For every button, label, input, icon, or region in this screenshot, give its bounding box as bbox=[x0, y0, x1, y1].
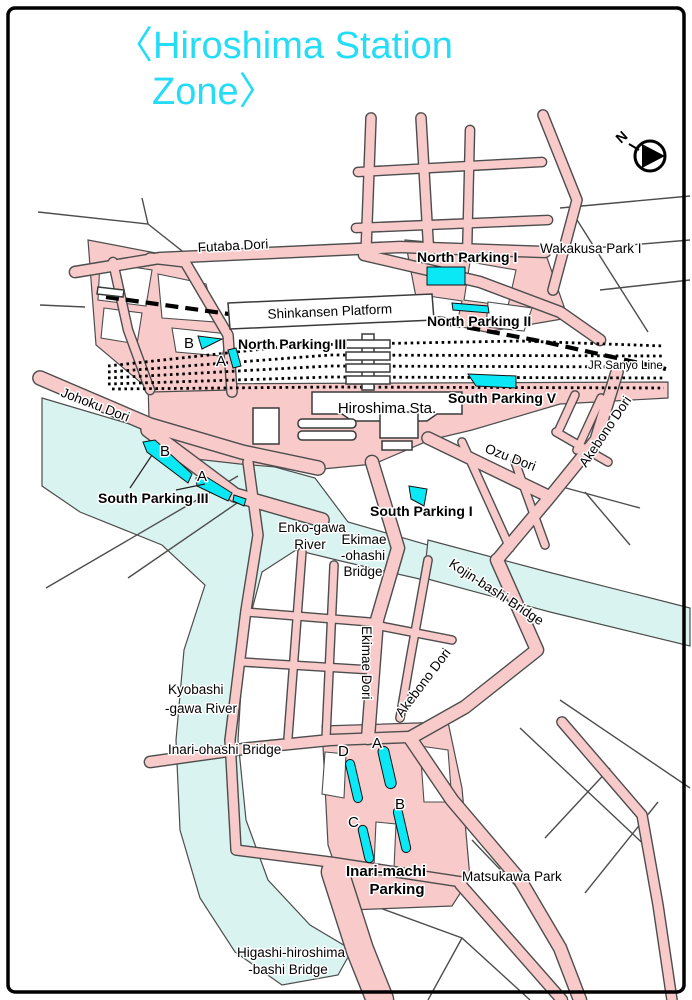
label-higashi-bridge-line1: Higashi-hiroshima bbox=[237, 945, 346, 960]
label-higashi-bridge-line2: -bashi Bridge bbox=[248, 962, 328, 977]
label-north-parking-3: North Parking III bbox=[238, 336, 346, 352]
label-ekimae-ohashi-line3: Bridge bbox=[343, 564, 382, 579]
minor-road bbox=[572, 212, 648, 332]
minor-road bbox=[585, 492, 630, 545]
platform-bar bbox=[346, 340, 390, 348]
label-jr-sanyo-line: JR Sanyo Line bbox=[588, 360, 663, 372]
road-lower-grid-v2 bbox=[326, 565, 334, 738]
label-north-parking-3-a: A bbox=[216, 353, 226, 370]
label-enko-gawa-river-line2: River bbox=[294, 537, 326, 552]
compass-n-label: N bbox=[612, 128, 630, 147]
label-enko-gawa-river-line1: Enko-gawa bbox=[278, 520, 346, 535]
label-kyobashi-gawa-line1: Kyobashi bbox=[168, 682, 224, 697]
label-lot-a: A bbox=[372, 735, 382, 752]
minor-road bbox=[380, 908, 530, 1000]
label-kyobashi-gawa-line2: -gawa River bbox=[165, 701, 238, 716]
label-matsukawa-park: Matsukawa Park bbox=[462, 869, 562, 884]
north-arrow-icon: N bbox=[612, 128, 665, 171]
platform-bar bbox=[346, 352, 390, 360]
label-south-parking-3: South Parking III bbox=[98, 490, 208, 506]
label-inari-machi-line1: Inari-machi bbox=[346, 863, 426, 880]
label-south-parking-5: South Parking V bbox=[448, 390, 557, 406]
label-lot-b: B bbox=[395, 796, 405, 813]
bus-bay bbox=[298, 431, 356, 440]
road-grid-north-v3 bbox=[467, 130, 470, 257]
label-ekimae-ohashi-line1: Ekimae bbox=[341, 532, 386, 547]
minor-road bbox=[555, 485, 640, 508]
label-north-parking-2: North Parking II bbox=[427, 313, 531, 329]
hiroshima-station-zone-map-page: 〈Hiroshima Station Zone〉 Futaba Dori Wak… bbox=[0, 0, 692, 1000]
label-south-parking-3-b: B bbox=[160, 443, 170, 460]
platform-bar bbox=[346, 376, 390, 384]
forecourt-structure bbox=[382, 441, 412, 450]
label-ekimae-dori: Ekimae Dori bbox=[359, 626, 374, 700]
bus-bay bbox=[298, 419, 356, 428]
label-north-parking-3-b: B bbox=[184, 335, 194, 352]
minor-road bbox=[142, 198, 148, 224]
label-south-parking-1: South Parking I bbox=[370, 503, 473, 519]
label-south-parking-3-a: A bbox=[197, 468, 207, 485]
minor-road bbox=[600, 280, 690, 290]
map-canvas: 〈Hiroshima Station Zone〉 Futaba Dori Wak… bbox=[0, 0, 692, 1000]
north-parking-1-marker bbox=[427, 267, 465, 285]
road-grid-north-v1 bbox=[366, 118, 371, 252]
label-ekimae-ohashi-line2: -ohashi bbox=[341, 548, 385, 563]
label-lot-d: D bbox=[338, 743, 349, 760]
road-lower-grid-h2 bbox=[242, 662, 372, 670]
label-inari-machi-line2: Parking bbox=[369, 881, 424, 898]
label-hiroshima-station: Hiroshima Sta. bbox=[338, 400, 436, 417]
road-grid-north-h1 bbox=[358, 162, 542, 172]
platform-bar bbox=[346, 364, 390, 372]
forecourt-structure bbox=[253, 408, 279, 444]
label-lot-c: C bbox=[348, 814, 359, 831]
road-matsukawa-east-casing bbox=[562, 722, 672, 1000]
platform-bridge-structure bbox=[346, 334, 390, 390]
river-kojin bbox=[424, 540, 690, 646]
label-north-parking-1: North Parking I bbox=[417, 249, 517, 265]
road-grid-north-h2 bbox=[356, 220, 548, 228]
map-title-line2: Zone〉 bbox=[152, 71, 277, 113]
label-inari-ohashi-bridge: Inari-ohashi Bridge bbox=[168, 742, 281, 757]
city-block bbox=[374, 822, 396, 868]
map-title-line1: 〈Hiroshima Station bbox=[115, 25, 453, 67]
label-wakakusa-park: Wakakusa Park I bbox=[540, 241, 642, 256]
road-lower-grid-h1 bbox=[246, 612, 370, 622]
minor-road bbox=[40, 305, 85, 307]
